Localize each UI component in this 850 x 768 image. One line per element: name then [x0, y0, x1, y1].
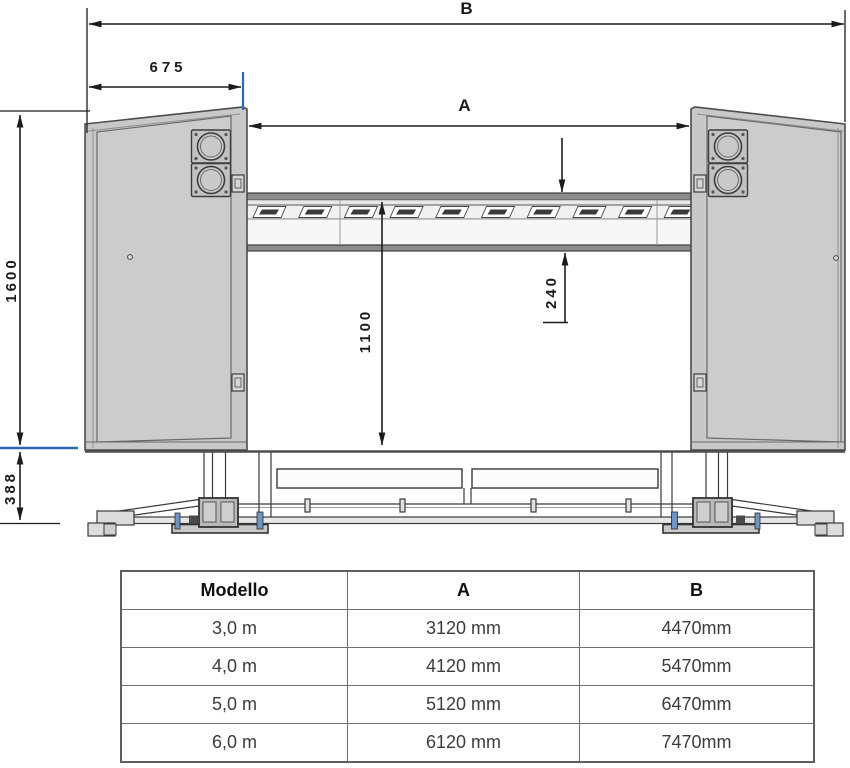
- dim-label-b: B: [440, 0, 494, 18]
- dim-label-1600: 1600: [3, 235, 21, 325]
- door-screw-icon: [128, 255, 133, 260]
- cell-b: 6470mm: [580, 686, 815, 724]
- cell-model: 6,0 m: [121, 724, 348, 763]
- table-row: 3,0 m 3120 mm 4470mm: [121, 610, 814, 648]
- cell-model: 5,0 m: [121, 686, 348, 724]
- dim-label-1100: 1100: [357, 286, 375, 376]
- hinge-icon: [232, 374, 244, 391]
- dim-label-675: 675: [134, 59, 202, 77]
- spec-table: Modello A B 3,0 m 3120 mm 4470mm 4,0 m 4…: [120, 570, 815, 763]
- fan-vent-icon: [709, 164, 748, 197]
- cell-b: 5470mm: [580, 648, 815, 686]
- cell-b: 4470mm: [580, 610, 815, 648]
- hinge-icon: [694, 374, 706, 391]
- col-header-b: B: [580, 571, 815, 610]
- hinge-icon: [232, 175, 244, 192]
- dim-label-a: A: [438, 97, 492, 115]
- left-cabinet: [85, 107, 247, 450]
- feeding-band: [247, 193, 697, 251]
- door-screw-icon: [834, 256, 839, 261]
- col-header-modello: Modello: [121, 571, 348, 610]
- base-frame: [85, 452, 845, 537]
- fan-vent-icon: [192, 164, 231, 197]
- dim-label-240: 240: [543, 257, 561, 327]
- table-row: 6,0 m 6120 mm 7470mm: [121, 724, 814, 763]
- cell-model: 4,0 m: [121, 648, 348, 686]
- right-cabinet: [691, 107, 845, 450]
- fan-vent-icon: [192, 130, 231, 163]
- fan-vent-icon: [709, 130, 748, 163]
- cell-a: 3120 mm: [348, 610, 580, 648]
- cell-a: 5120 mm: [348, 686, 580, 724]
- table-row: 5,0 m 5120 mm 6470mm: [121, 686, 814, 724]
- cell-model: 3,0 m: [121, 610, 348, 648]
- col-header-a: A: [348, 571, 580, 610]
- cell-b: 7470mm: [580, 724, 815, 763]
- cell-a: 6120 mm: [348, 724, 580, 763]
- table-header-row: Modello A B: [121, 571, 814, 610]
- table-row: 4,0 m 4120 mm 5470mm: [121, 648, 814, 686]
- dim-label-388: 388: [2, 453, 20, 523]
- machine-drawing: [0, 0, 850, 560]
- technical-drawing-page: B 675 A 1600 1100 240 388 Modello A B 3,…: [0, 0, 850, 768]
- cell-a: 4120 mm: [348, 648, 580, 686]
- hinge-icon: [694, 175, 706, 192]
